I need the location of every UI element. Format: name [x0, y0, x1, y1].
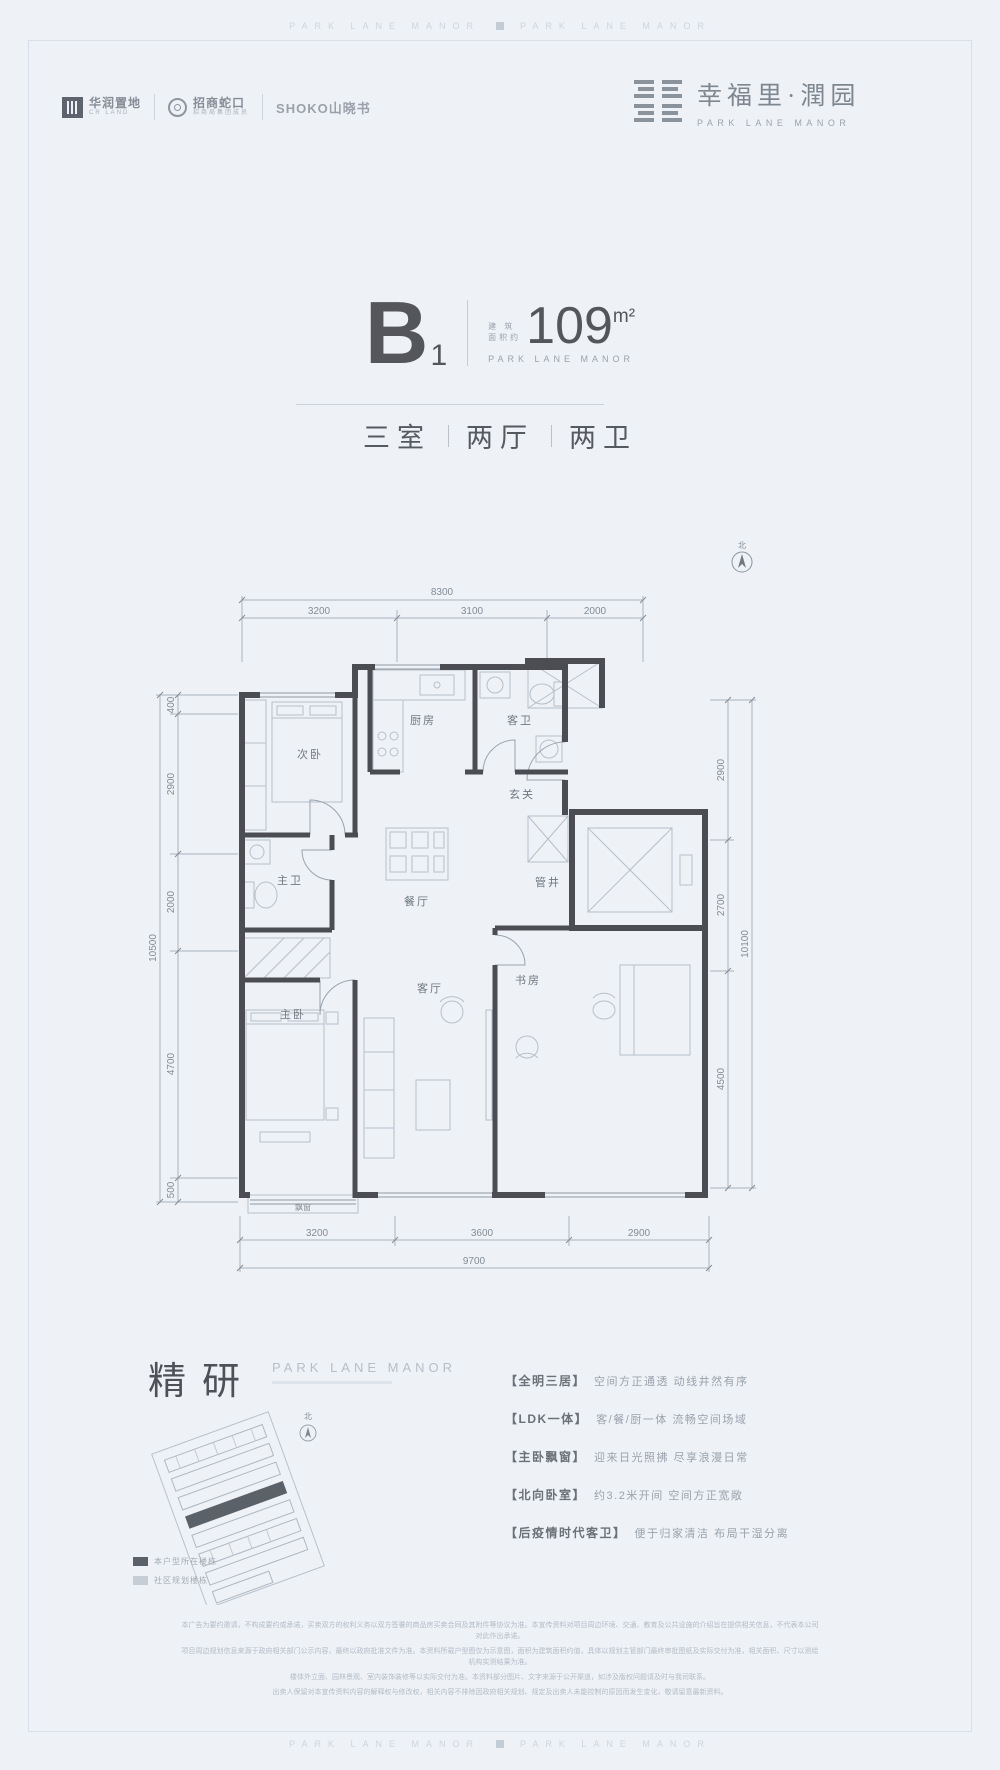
china-merchants-logo: 招商蛇口 招商局集团成员	[168, 97, 249, 117]
disclaimer-line: 项目周边规划信息来源于政府相关部门公示内容，最终以政府批准文件为准。本资料所载户…	[180, 1646, 820, 1668]
unit-headline: B1 建 筑面积约 109 m² PARK LANE MANOR	[0, 296, 1000, 371]
room-bay-window: 飘窗	[295, 1202, 311, 1212]
cr-land-name: 华润置地	[89, 97, 141, 110]
dim-left-1: 400	[166, 696, 177, 713]
disclaimer-line: 本广告为要约邀请，不构成要约或承诺，买卖双方的权利义务以双方签署的商品房买卖合同…	[180, 1620, 820, 1642]
door-swings	[302, 740, 565, 1015]
floorplan-diagram: 8300 3200 3100 2000 10500 400 2900 2000 …	[130, 540, 795, 1300]
flyer-page: PARK LANE MANOR PARK LANE MANOR 华润置地 CR …	[0, 0, 1000, 1770]
feature-tag: 【全明三居】	[505, 1372, 586, 1389]
layout-halls: 两厅	[466, 416, 534, 455]
brand-square-icon	[496, 1740, 504, 1748]
room-shaft: 管井	[535, 875, 561, 889]
svg-text:北: 北	[304, 1412, 312, 1421]
disclaimer-line: 出卖人保留对本宣传资料内容的解释权与修改权，相关内容不排除因政府相关规划、规定及…	[180, 1687, 820, 1698]
room-second-bedroom: 次卧	[297, 747, 323, 761]
feature-desc: 便于归家清洁 布局干湿分离	[635, 1525, 790, 1541]
room-master-bedroom: 主卧	[280, 1008, 306, 1021]
developer-logos: 华润置地 CR LAND 招商蛇口 招商局集团成员 SHOKO山晓书	[62, 94, 371, 120]
dim-top-total: 8300	[431, 587, 454, 598]
watermark-text: PARK LANE MANOR	[289, 1739, 480, 1749]
dim-left-total: 10500	[148, 934, 159, 962]
disclaimer-line: 楼体外立面、园林景观、室内装饰装修等以实际交付为准。本资料部分图片、文字来源于公…	[180, 1672, 820, 1683]
dim-right-3: 4500	[716, 1067, 727, 1090]
furniture-sketches	[244, 661, 692, 1213]
room-master-bath: 主卫	[277, 874, 303, 887]
siteplan-legend: 本户型所在楼栋 社区规划楼栋	[133, 1556, 217, 1586]
north-arrow-icon: 北	[732, 541, 752, 572]
dimension-ticks	[157, 597, 755, 1271]
feature-desc: 客/餐/厨一体 流畅空间场域	[596, 1411, 747, 1427]
dim-right-total: 10100	[740, 930, 751, 958]
room-kitchen: 厨房	[410, 714, 436, 727]
dim-right-1: 2900	[716, 758, 727, 781]
dim-bottom-1: 3200	[306, 1228, 329, 1239]
area-unit: m²	[613, 306, 635, 328]
unit-brand-en: PARK LANE MANOR	[488, 354, 635, 364]
brand-mark-icon	[632, 76, 684, 128]
feature-row: 【北向卧室】 约3.2米开间 空间方正宽敞	[505, 1486, 825, 1503]
china-merchants-sub: 招商局集团成员	[193, 110, 249, 117]
watermark-text: PARK LANE MANOR	[520, 1739, 711, 1749]
brand-name-cn: 幸福里·潤园	[697, 76, 860, 112]
feature-tag: 【后疫情时代客卫】	[505, 1524, 627, 1541]
legend-label: 社区规划楼栋	[154, 1575, 208, 1586]
room-foyer: 玄关	[509, 787, 535, 801]
logo-divider	[154, 94, 155, 120]
legend-swatch-light	[133, 1576, 148, 1585]
layout-baths: 两卫	[569, 416, 637, 455]
room-living: 客厅	[417, 981, 443, 995]
watermark-text: PARK LANE MANOR	[289, 21, 480, 31]
refine-title: 精研	[148, 1350, 256, 1405]
legend-item-this-unit: 本户型所在楼栋	[133, 1556, 217, 1567]
dim-bottom-2: 3600	[471, 1228, 494, 1239]
shoko-logo: SHOKO山晓书	[276, 98, 371, 117]
room-dining: 餐厅	[404, 894, 430, 908]
dim-top-3: 2000	[584, 606, 607, 617]
brand-square-icon	[496, 22, 504, 30]
dim-top-2: 3100	[461, 606, 484, 617]
legend-label: 本户型所在楼栋	[154, 1556, 217, 1567]
feature-row: 【全明三居】 空间方正通透 动线井然有序	[505, 1372, 825, 1389]
top-watermark: PARK LANE MANOR PARK LANE MANOR	[0, 21, 1000, 31]
layout-summary: 三室 两厅 两卫	[0, 416, 1000, 455]
disclaimer-block: 本广告为要约邀请，不构成要约或承诺，买卖双方的权利义务以双方签署的商品房买卖合同…	[180, 1620, 820, 1702]
cr-land-name-en: CR LAND	[89, 110, 141, 117]
feature-tag: 【北向卧室】	[505, 1486, 586, 1503]
dim-top-1: 3200	[308, 606, 331, 617]
layout-rooms: 三室	[363, 416, 431, 455]
brand-block: 幸福里·潤园 PARK LANE MANOR	[632, 76, 860, 128]
svg-text:北: 北	[738, 541, 746, 550]
shoko-name: SHOKO山晓书	[276, 98, 371, 117]
feature-row: 【LDK一体】 客/餐/厨一体 流畅空间场域	[505, 1410, 825, 1427]
legend-swatch-dark	[133, 1557, 148, 1566]
layout-sep	[448, 425, 449, 447]
dim-left-2: 2900	[166, 772, 177, 795]
dim-bottom-total: 9700	[463, 1256, 486, 1267]
room-study: 书房	[515, 974, 541, 987]
unit-code: B1	[365, 296, 447, 371]
refine-title-en: PARK LANE MANOR	[272, 1360, 456, 1375]
siteplan-north-icon: 北	[300, 1412, 316, 1441]
layout-sep	[551, 425, 552, 447]
refine-header: 精研 PARK LANE MANOR	[148, 1350, 456, 1405]
feature-desc: 约3.2米开间 空间方正宽敞	[594, 1487, 743, 1503]
dim-left-3: 2000	[166, 890, 177, 913]
dim-right-2: 2700	[716, 893, 727, 916]
refine-subline	[272, 1381, 392, 1384]
dim-left-5: 500	[166, 1181, 177, 1198]
cr-land-icon	[62, 97, 83, 118]
legend-item-other: 社区规划楼栋	[133, 1575, 217, 1586]
feature-desc: 迎来日光照拂 尽享浪漫日常	[594, 1449, 749, 1465]
logo-divider	[262, 94, 263, 120]
feature-desc: 空间方正通透 动线井然有序	[594, 1373, 749, 1389]
brand-name-en: PARK LANE MANOR	[697, 118, 860, 128]
headline-rule	[296, 404, 604, 405]
feature-tag: 【主卧飘窗】	[505, 1448, 586, 1465]
feature-row: 【后疫情时代客卫】 便于归家清洁 布局干湿分离	[505, 1524, 825, 1541]
bottom-watermark: PARK LANE MANOR PARK LANE MANOR	[0, 1739, 1000, 1749]
china-merchants-icon	[168, 98, 187, 117]
china-merchants-name: 招商蛇口	[193, 97, 249, 110]
dim-bottom-3: 2900	[628, 1228, 651, 1239]
cr-land-logo: 华润置地 CR LAND	[62, 97, 141, 118]
unit-code-sub: 1	[430, 341, 447, 371]
windows	[250, 665, 685, 1204]
siteplan-highlighted-building	[185, 1481, 287, 1529]
walls	[239, 658, 708, 1198]
area-label: 建 筑面积约	[488, 321, 521, 343]
headline-divider	[467, 300, 468, 366]
dim-left-4: 4700	[166, 1052, 177, 1075]
feature-list: 【全明三居】 空间方正通透 动线井然有序 【LDK一体】 客/餐/厨一体 流畅空…	[505, 1372, 825, 1562]
feature-row: 【主卧飘窗】 迎来日光照拂 尽享浪漫日常	[505, 1448, 825, 1465]
area-value: 109	[526, 303, 613, 350]
room-guest-bath: 客卫	[507, 713, 533, 727]
watermark-text: PARK LANE MANOR	[520, 21, 711, 31]
feature-tag: 【LDK一体】	[505, 1410, 588, 1427]
